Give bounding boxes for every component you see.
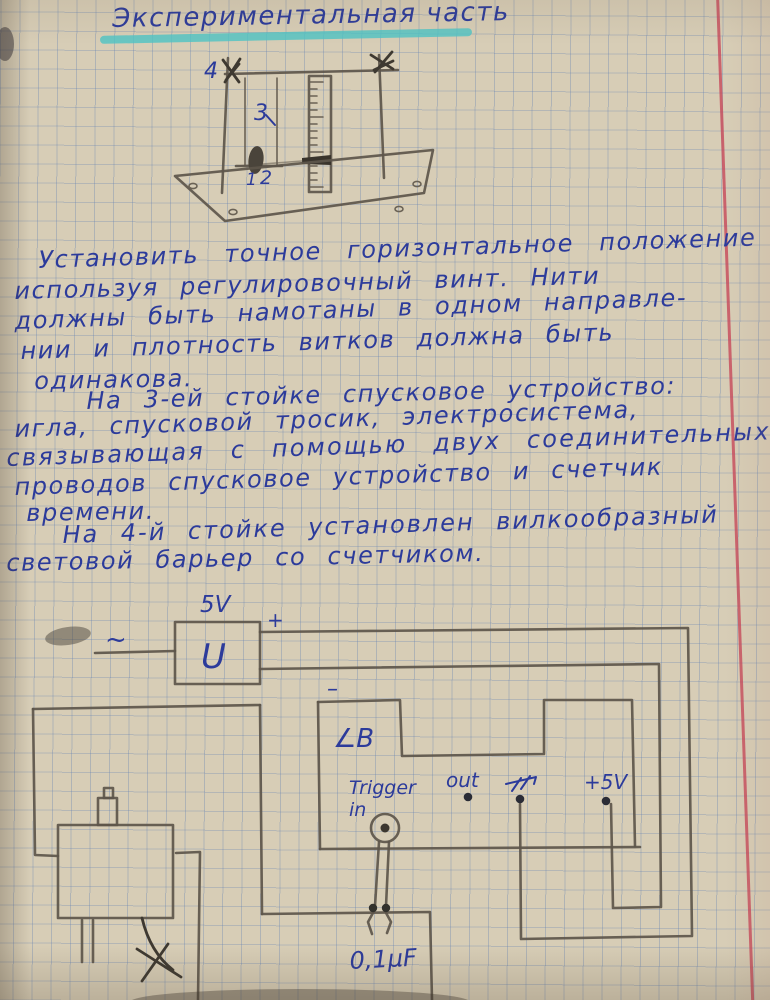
- bottom-shadow: [130, 989, 470, 1000]
- ground-terminal-dot: [516, 795, 525, 804]
- notebook-page: Экспериментальная часть Установить точно…: [0, 0, 770, 1000]
- out-terminal-dot: [464, 793, 473, 802]
- bottom-bus-wire: [320, 847, 640, 849]
- trigger-connector-pin: [381, 824, 390, 833]
- trigger-down-wires: [375, 842, 389, 906]
- source-label: U: [201, 637, 226, 677]
- capacitor-terminal: [369, 904, 377, 912]
- trigger-in-label: in: [349, 799, 366, 821]
- apparatus-label-1: 1: [246, 170, 257, 190]
- base-hole: [395, 206, 403, 211]
- out-label: out: [446, 768, 480, 792]
- photo-artifacts: [0, 27, 470, 1000]
- plus-label: +: [267, 608, 284, 632]
- plus5v-label: +5V: [584, 770, 628, 794]
- plus5v-terminal-dot: [602, 797, 611, 806]
- base-hole: [229, 209, 237, 214]
- minus-label: –: [327, 677, 338, 702]
- light-barrier-left-edge: [318, 702, 320, 849]
- lamp-cross: [137, 944, 181, 981]
- base-hole: [189, 183, 197, 188]
- apparatus-label-3: 3: [254, 101, 268, 126]
- hand-drawings: 4 3 1 2: [0, 0, 770, 1000]
- left-block-left-wire: [33, 709, 58, 856]
- capacitor-terminal: [382, 904, 390, 912]
- release-device-box: [58, 825, 173, 918]
- button-nub: [104, 788, 113, 798]
- edge-smudge: [0, 27, 14, 61]
- apparatus-label-4: 4: [204, 59, 218, 84]
- apparatus-sketch: 4 3 1 2: [175, 52, 433, 221]
- contact-lines: [82, 920, 93, 962]
- long-vertical-wire: [176, 852, 200, 1000]
- voltage-label: 5V: [200, 592, 233, 618]
- circuit-sketch: 5V ~ U + – ∠B Trigger in out +5V 0,1µF: [33, 592, 692, 1000]
- ruler-ticks: [310, 82, 323, 187]
- ac-symbol: ~: [105, 625, 127, 655]
- button-body: [98, 798, 117, 825]
- capacitor-label: 0,1µF: [349, 943, 419, 975]
- light-barrier-label: ∠B: [333, 724, 374, 754]
- base-hole: [413, 181, 421, 186]
- left-block-top-wire: [33, 705, 260, 709]
- apparatus-crossbar: [225, 70, 398, 74]
- apparatus-ruler: [309, 76, 331, 192]
- capacitor-prongs: [368, 911, 391, 934]
- apparatus-label-2: 2: [260, 167, 272, 189]
- pencil-smudge: [44, 624, 92, 648]
- trigger-label: Trigger: [349, 777, 417, 799]
- left-block-right-wire: [260, 705, 262, 914]
- ground-icon: [506, 776, 536, 791]
